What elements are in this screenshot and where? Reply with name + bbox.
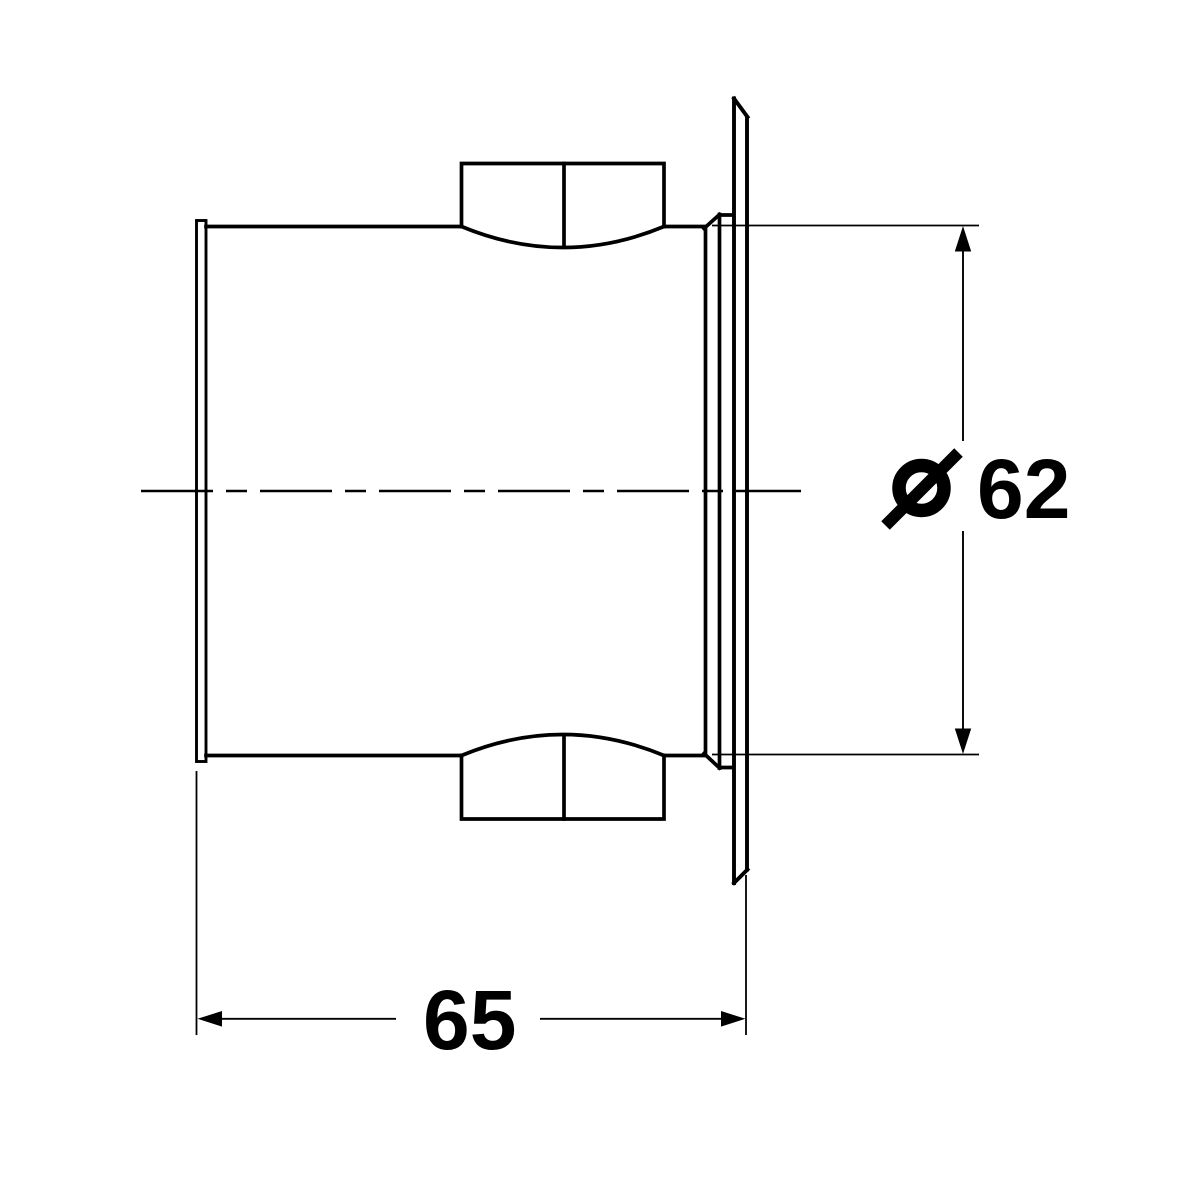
svg-text:65: 65 — [423, 973, 516, 1067]
svg-text:62: 62 — [977, 442, 1070, 536]
